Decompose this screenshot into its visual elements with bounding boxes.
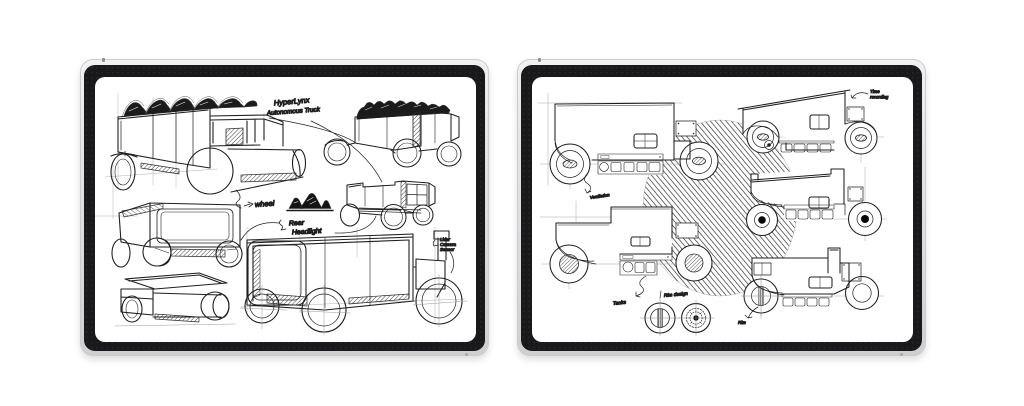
svg-text:Autonomous Truck: Autonomous Truck [266,106,321,117]
svg-text:Tanks: Tanks [613,300,627,307]
svg-text:Headlight: Headlight [292,228,323,237]
svg-text:Ventilation: Ventilation [589,192,610,200]
svg-text:Rim design: Rim design [664,291,689,299]
svg-text:HyperLynx: HyperLynx [273,95,310,107]
svg-text:Sensor: Sensor [440,247,455,252]
svg-text:Rim: Rim [738,320,746,325]
svg-text:Time: Time [870,89,880,94]
svg-text:Rear: Rear [289,220,305,228]
svg-text:wheel: wheel [255,199,276,209]
svg-text:recording: recording [870,95,889,100]
